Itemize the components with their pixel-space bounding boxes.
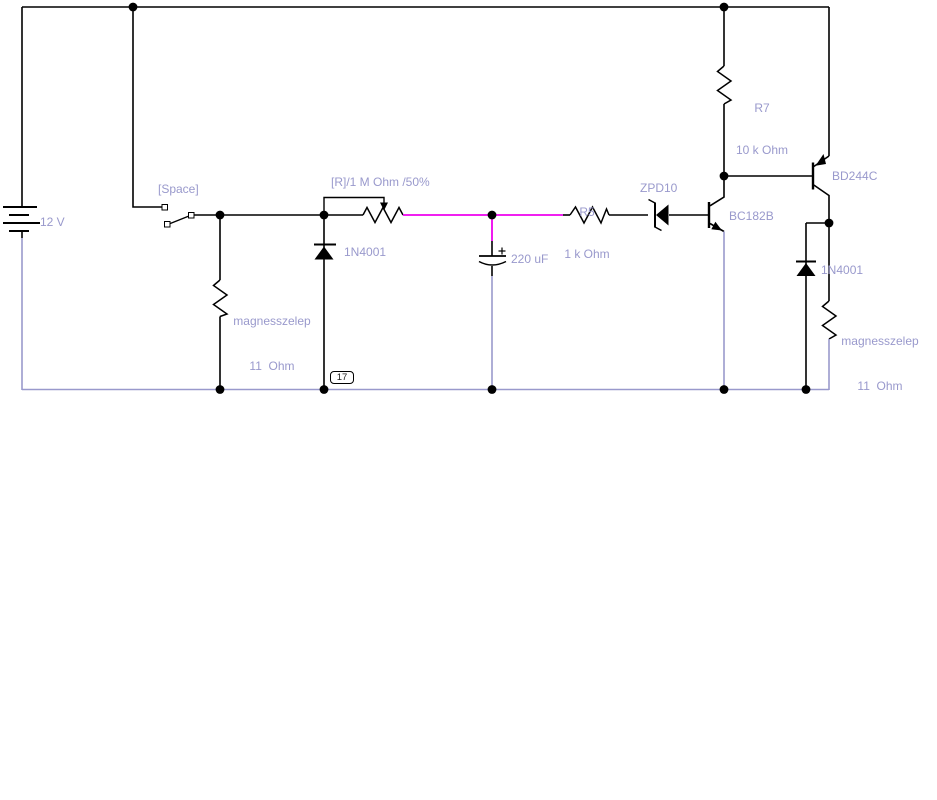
junction-dot <box>720 172 729 181</box>
switch-symbol[interactable] <box>162 205 194 228</box>
resistor-r7-label: R7 10 k Ohm <box>731 73 793 185</box>
wire-switch-feed[interactable] <box>133 7 162 207</box>
r7-value: 10 k Ohm <box>731 143 793 157</box>
r5-value: 1 k Ohm <box>556 247 618 261</box>
npn-collector <box>710 176 724 206</box>
potentiometer-label: [R]/1 M Ohm /50% <box>331 176 430 189</box>
junction-dot <box>802 385 811 394</box>
r5-ref: R5 <box>556 205 618 219</box>
solenoid-right-symbol[interactable] <box>823 301 837 339</box>
solenoid-right-value: 11 Ohm <box>835 379 925 394</box>
zener-bend-bottom <box>655 227 662 231</box>
node-number-badge: 17 <box>330 371 354 384</box>
return-net[interactable] <box>22 232 829 391</box>
transistor-npn-label: BC182B <box>729 210 774 223</box>
npn-emitter-arrow-icon <box>711 222 722 231</box>
switch-lever[interactable] <box>169 216 189 224</box>
zener-symbol[interactable] <box>649 200 669 231</box>
r7-zigzag <box>718 66 732 104</box>
junction-dot <box>825 219 834 228</box>
transistor-pnp-label: BD244C <box>832 170 877 183</box>
capacitor-label: 220 uF <box>511 253 548 266</box>
battery-symbol[interactable] <box>3 207 40 238</box>
r7-ref: R7 <box>731 101 793 115</box>
zener-label: ZPD10 <box>640 182 677 195</box>
solenoid-right-name: magnesszelep <box>835 334 925 349</box>
resistor-r7-symbol[interactable] <box>718 7 732 176</box>
pnp-collector <box>814 185 829 223</box>
junction-dot <box>488 385 497 394</box>
junction-dot <box>488 211 497 220</box>
diode-right-symbol[interactable] <box>796 262 816 277</box>
junction-dot <box>320 385 329 394</box>
circuit-svg <box>0 0 937 800</box>
junction-dot <box>216 385 225 394</box>
zener-triangle <box>656 205 669 226</box>
zener-bend-top <box>649 200 656 204</box>
solenoid-left-name: magnesszelep <box>228 314 316 329</box>
transistor-pnp-symbol[interactable] <box>813 7 829 223</box>
diode-left-label: 1N4001 <box>344 246 386 259</box>
cap-bottom-plate-arc <box>479 262 506 266</box>
junction-dot <box>129 3 138 12</box>
diode-right-triangle <box>797 263 816 276</box>
junction-dot <box>720 3 729 12</box>
solenoid-left-symbol[interactable] <box>214 280 228 317</box>
pot-wiper-loop <box>324 198 384 216</box>
junction-dot <box>216 211 225 220</box>
highlighted-net[interactable] <box>403 215 563 241</box>
switch-lever-tip <box>165 222 171 228</box>
capacitor-symbol[interactable] <box>479 241 506 276</box>
solenoid-right-zigzag <box>823 301 837 339</box>
diode-left-triangle <box>315 247 334 260</box>
junction-dot <box>320 211 329 220</box>
diode-right-label: 1N4001 <box>821 264 863 277</box>
battery-label: 12 V <box>40 216 65 229</box>
pot-zigzag <box>363 208 403 223</box>
junction-dot <box>720 385 729 394</box>
resistor-r5-label: R5 1 k Ohm <box>556 177 618 289</box>
switch-terminal-left <box>162 205 168 211</box>
switch-label: [Space] <box>158 183 199 196</box>
schematic-canvas[interactable]: 12 V [Space] [R]/1 M Ohm /50% 1N4001 mag… <box>0 0 937 800</box>
wire-power-rails[interactable] <box>22 7 829 389</box>
solenoid-left-value: 11 Ohm <box>228 359 316 374</box>
diode-left-symbol[interactable] <box>314 245 336 260</box>
solenoid-left-zigzag <box>214 280 228 317</box>
pnp-emitter-arrow-icon <box>816 154 827 166</box>
solenoid-right-label: magnesszelep 11 Ohm <box>835 304 925 424</box>
switch-terminal-right <box>189 213 195 219</box>
transistor-npn-symbol[interactable] <box>709 176 724 232</box>
potentiometer-symbol[interactable] <box>324 198 403 223</box>
solenoid-left-label: magnesszelep 11 Ohm <box>228 284 316 404</box>
